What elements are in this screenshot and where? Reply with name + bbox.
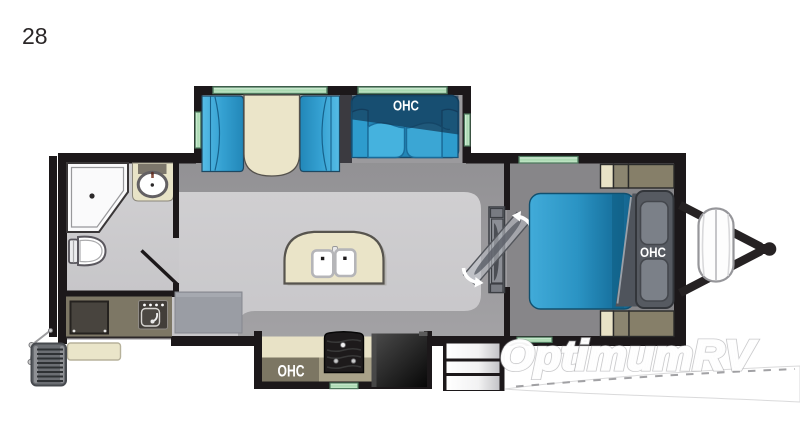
svg-text:OHC: OHC: [640, 244, 666, 260]
svg-text:OHC: OHC: [278, 363, 305, 381]
svg-text:OHC: OHC: [393, 99, 419, 115]
svg-text:OptimumRV: OptimumRV: [500, 332, 758, 379]
svg-text:28: 28: [22, 23, 48, 49]
